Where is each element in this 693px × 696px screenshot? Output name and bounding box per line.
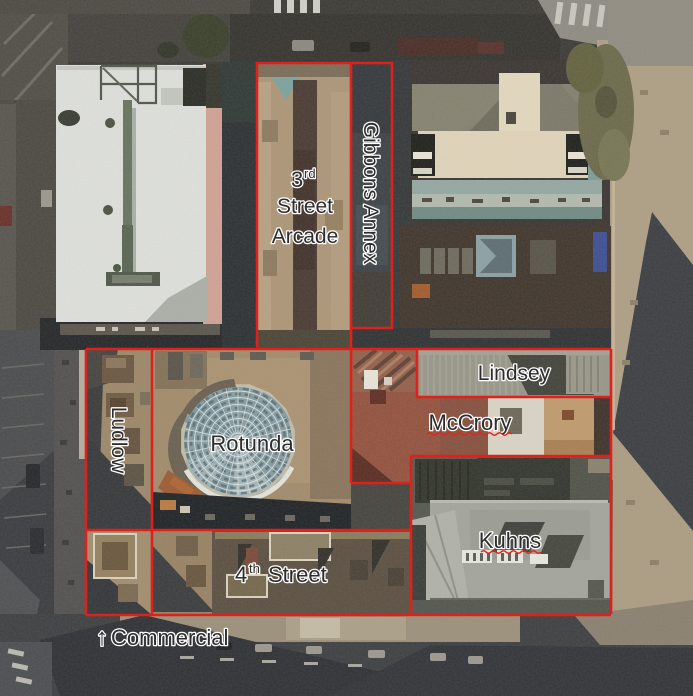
svg-text:th: th bbox=[249, 561, 260, 576]
svg-text:Street: Street bbox=[268, 562, 327, 587]
svg-text:4: 4 bbox=[235, 562, 247, 587]
svg-text:Lindsey: Lindsey bbox=[478, 362, 551, 385]
svg-text:3: 3 bbox=[291, 167, 303, 192]
svg-text:Commercial: Commercial bbox=[111, 625, 228, 650]
svg-text:Gibbons Annex: Gibbons Annex bbox=[359, 122, 382, 265]
svg-text:McCrory: McCrory bbox=[428, 410, 511, 435]
svg-text:Kuhns: Kuhns bbox=[479, 528, 541, 553]
svg-text:Rotunda: Rotunda bbox=[210, 431, 294, 456]
svg-text:Street: Street bbox=[277, 195, 333, 218]
svg-text:Arcade: Arcade bbox=[272, 225, 339, 248]
svg-text:Ludlow: Ludlow bbox=[107, 407, 130, 474]
svg-text:↑: ↑ bbox=[96, 624, 108, 651]
svg-text:rd: rd bbox=[304, 166, 316, 181]
